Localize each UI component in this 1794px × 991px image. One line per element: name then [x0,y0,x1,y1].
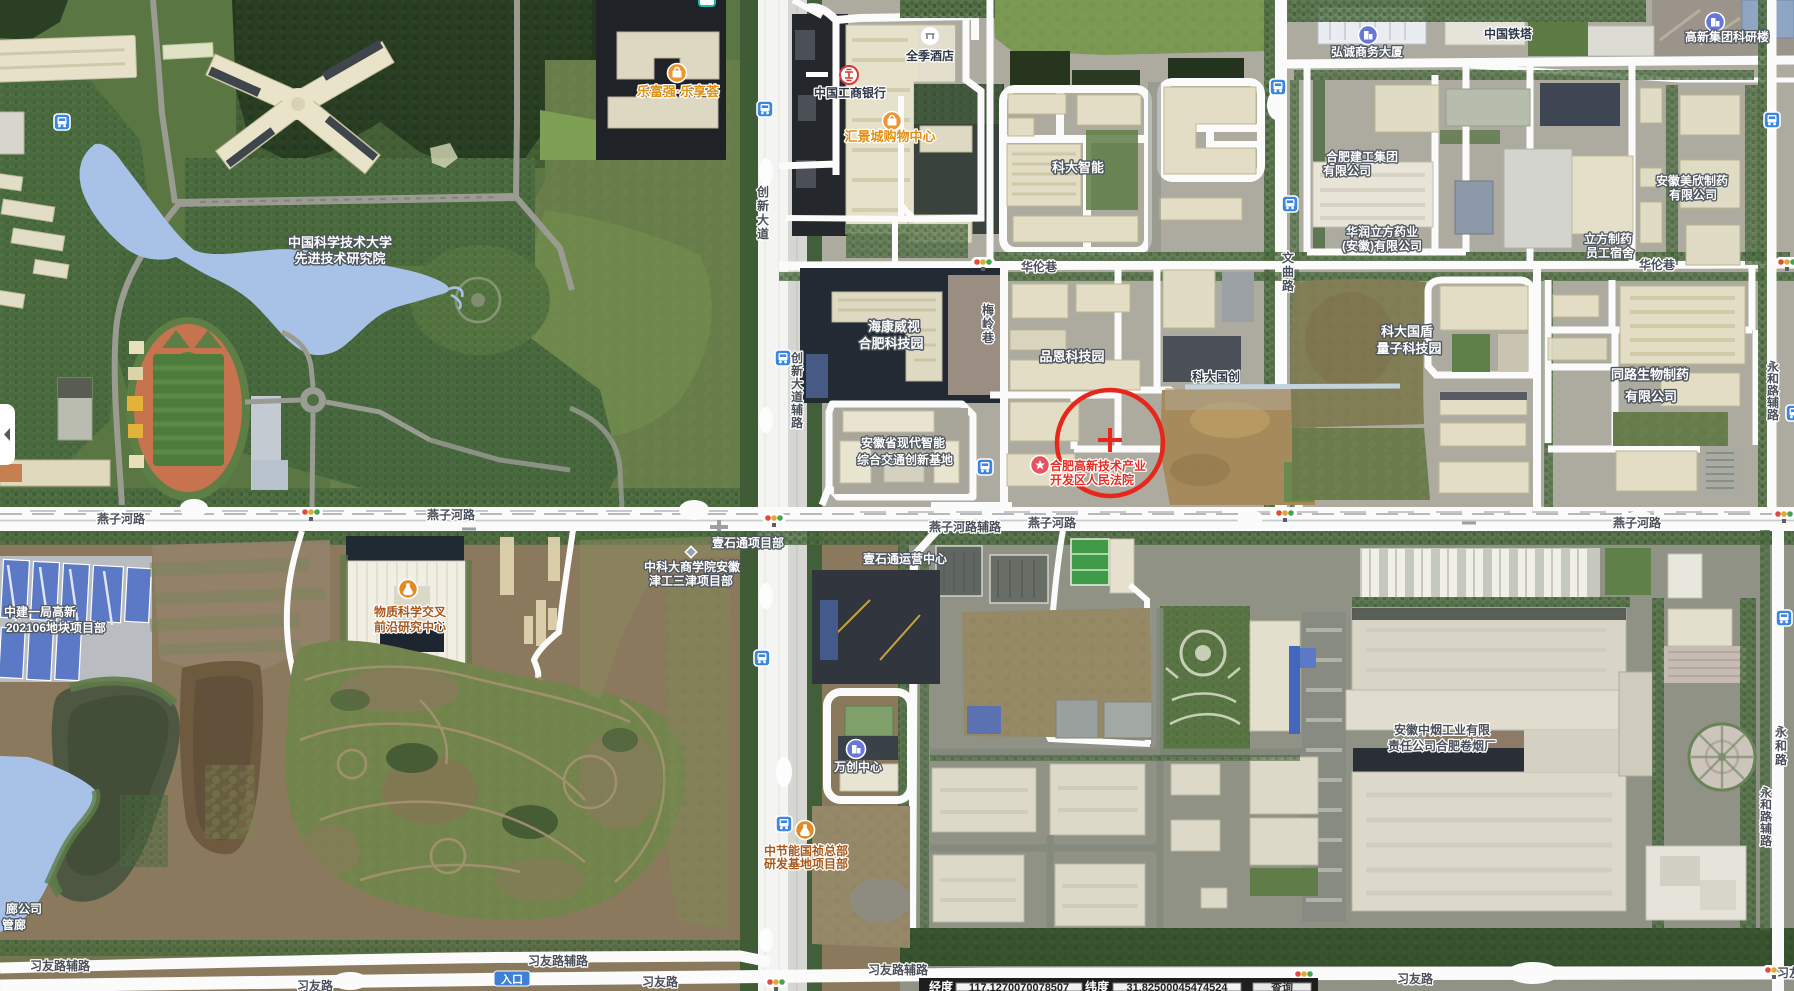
svg-text:纬度: 纬度 [1085,979,1110,991]
svg-text:中节能国祯总部: 中节能国祯总部 [764,843,848,858]
svg-text:习友路辅路: 习友路辅路 [30,958,91,973]
svg-text:华伦巷: 华伦巷 [1639,257,1676,272]
svg-text:入口: 入口 [501,973,523,986]
svg-text:习友: 习友 [1777,965,1794,980]
svg-text:中国铁塔: 中国铁塔 [1484,26,1533,41]
svg-text:研发基地项目部: 研发基地项目部 [764,856,848,871]
svg-text:安徽省现代智能: 安徽省现代智能 [861,435,945,450]
svg-text:品恩科技园: 品恩科技园 [1039,349,1104,364]
svg-text:综合交通创新基地: 综合交通创新基地 [857,452,953,467]
svg-text:管廊: 管廊 [2,917,26,932]
svg-text:中国工商银行: 中国工商银行 [814,85,886,100]
svg-text:万创中心: 万创中心 [833,759,882,774]
svg-text:责任公司合肥卷烟厂: 责任公司合肥卷烟厂 [1388,738,1496,753]
svg-text:有限公司: 有限公司 [1669,187,1717,202]
svg-text:文曲路: 文曲路 [1282,250,1295,293]
svg-text:梅岭巷: 梅岭巷 [981,302,995,345]
svg-text:科大智能: 科大智能 [1052,160,1104,175]
svg-text:壹石通项目部: 壹石通项目部 [712,535,784,550]
svg-text:员工宿舍: 员工宿舍 [1586,245,1635,260]
svg-text:202106地块项目部: 202106地块项目部 [6,620,106,635]
svg-text:有限公司: 有限公司 [1323,163,1371,178]
svg-text:合肥科技园: 合肥科技园 [858,336,923,351]
svg-text:华伦巷: 华伦巷 [1021,259,1058,274]
svg-text:31.82500045474524: 31.82500045474524 [1127,982,1229,991]
svg-text:中科大商学院安徽: 中科大商学院安徽 [644,559,741,574]
svg-text:前沿研究中心: 前沿研究中心 [374,619,446,634]
svg-text:燕子河路: 燕子河路 [427,507,476,522]
svg-text:安徽中烟工业有限: 安徽中烟工业有限 [1394,722,1490,737]
svg-text:习友路: 习友路 [1397,971,1434,986]
svg-text:燕子河路: 燕子河路 [1613,515,1662,530]
svg-text:(安徽)有限公司: (安徽)有限公司 [1342,238,1422,253]
svg-text:合肥高新技术产业: 合肥高新技术产业 [1050,458,1146,473]
svg-text:海康威视: 海康威视 [868,319,920,334]
svg-text:中国科学技术大学: 中国科学技术大学 [288,235,392,250]
svg-text:习友路: 习友路 [642,974,679,989]
svg-text:燕子河路辅路: 燕子河路辅路 [929,519,1002,534]
svg-text:全季酒店: 全季酒店 [905,48,954,63]
svg-text:同路生物制药: 同路生物制药 [1611,367,1689,382]
svg-text:永和路辅路: 永和路辅路 [1759,785,1773,848]
svg-text:弘诚商务大厦: 弘诚商务大厦 [1331,44,1404,59]
svg-text:永和路: 永和路 [1774,724,1788,767]
svg-text:华润立方药业: 华润立方药业 [1346,224,1418,239]
svg-text:习友路: 习友路 [297,978,334,991]
svg-text:开发区人民法院: 开发区人民法院 [1050,472,1134,487]
svg-text:合肥建工集团: 合肥建工集团 [1326,149,1398,164]
svg-text:乐富强·乐享荟: 乐富强·乐享荟 [637,84,720,99]
svg-text:燕子河路: 燕子河路 [97,511,146,526]
svg-text:高新集团科研楼: 高新集团科研楼 [1685,29,1769,44]
svg-text:查询: 查询 [1271,980,1293,991]
svg-text:117.1270070078507: 117.1270070078507 [969,982,1069,991]
svg-text:立方制药: 立方制药 [1584,231,1632,246]
svg-text:津工三津项目部: 津工三津项目部 [649,573,733,588]
svg-text:壹石通运营中心: 壹石通运营中心 [863,551,947,566]
svg-text:中建一局高新: 中建一局高新 [4,604,76,619]
svg-text:物质科学交叉: 物质科学交叉 [374,604,447,619]
svg-text:习友路辅路: 习友路辅路 [528,953,589,968]
svg-text:量子科技园: 量子科技园 [1376,341,1441,356]
svg-text:先进技术研究院: 先进技术研究院 [294,251,385,266]
svg-text:习友路辅路: 习友路辅路 [868,962,929,977]
svg-text:有限公司: 有限公司 [1625,389,1677,404]
svg-text:创新大道: 创新大道 [756,184,769,241]
svg-text:燕子河路: 燕子河路 [1028,515,1077,530]
svg-text:永和路辅路: 永和路辅路 [1766,359,1780,422]
svg-text:创新大道辅路: 创新大道辅路 [790,350,804,430]
svg-text:科大国盾: 科大国盾 [1381,324,1433,339]
svg-text:科大国创: 科大国创 [1192,369,1240,384]
svg-text:经度: 经度 [929,979,954,991]
svg-text:汇景城购物中心: 汇景城购物中心 [844,129,935,144]
svg-text:安徽美欣制药: 安徽美欣制药 [1656,173,1728,188]
svg-text:廊公司: 廊公司 [6,901,42,916]
